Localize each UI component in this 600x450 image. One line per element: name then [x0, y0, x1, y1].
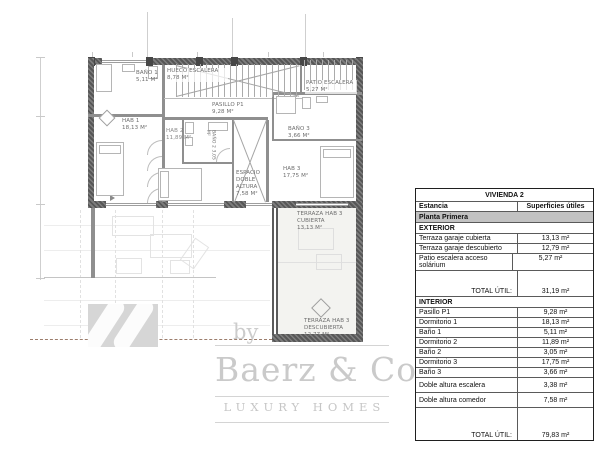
row-value: 5,11 m² — [517, 328, 593, 337]
toilet — [302, 97, 311, 109]
row-value: 3,66 m² — [517, 368, 593, 377]
room-label-hab3: HAB 3 17,75 m² — [283, 166, 313, 180]
row-label: Dormitorio 3 — [416, 358, 517, 367]
watermark-by: by — [215, 322, 389, 343]
bathtub — [96, 64, 112, 92]
total-value: 31,19 m² — [517, 271, 593, 296]
wall-bottom — [88, 201, 106, 208]
room-area: 5,11 m² — [136, 77, 162, 84]
room-area: 7,58 m² — [236, 191, 266, 198]
room-name: BAÑO 3 — [288, 126, 310, 132]
room-name: HUECO ESCALERA — [167, 68, 218, 74]
room-label-hueco-escalera: HUECO ESCALERA 8,78 m² — [166, 68, 228, 82]
room-name: BAÑO 1 — [136, 70, 158, 76]
table-row: Baño 1 5,11 m² — [416, 327, 593, 337]
partition — [232, 120, 234, 202]
sink — [316, 96, 328, 103]
room-name: HAB 2 — [166, 128, 183, 134]
pillow — [99, 145, 121, 154]
room-label-hab2: HAB 2 11,89 m² — [166, 128, 196, 142]
dimension-line — [40, 57, 41, 280]
column-header: Estancia — [416, 202, 517, 211]
row-label: Patio escalera acceso solárium — [416, 254, 512, 270]
table-row: Baño 2 3,05 m² — [416, 347, 593, 357]
terrace-furniture — [316, 254, 342, 270]
partition — [266, 120, 269, 202]
dimension-tick — [132, 52, 133, 57]
garden-line — [44, 225, 270, 226]
terrace-wall-left — [272, 208, 278, 336]
garden-line — [44, 300, 270, 301]
dimension-tick — [36, 116, 45, 117]
wardrobe-door-arc — [147, 140, 162, 155]
grid-line — [147, 12, 148, 58]
shower — [276, 96, 296, 114]
row-value: 11,89 m² — [517, 338, 593, 347]
brand-watermark: by Baerz & Co LUXURY HOMES — [215, 322, 389, 423]
table-row: Terraza garaje cubierta 13,13 m² — [416, 233, 593, 243]
row-label: Pasillo P1 — [416, 308, 517, 317]
wall-left-wing — [91, 205, 95, 278]
room-area: 17,75 m² — [283, 173, 313, 180]
table-row: Dormitorio 2 11,89 m² — [416, 337, 593, 347]
table-title-row: VIVIENDA 2 — [416, 189, 593, 201]
row-value: 18,13 m² — [517, 318, 593, 327]
row-label: Baño 2 — [416, 348, 517, 357]
row-value: 9,28 m² — [517, 308, 593, 317]
table-header-row: Estancia Superficies útiles — [416, 201, 593, 211]
row-label: Doble altura escalera — [416, 378, 517, 392]
row-label: Dormitorio 1 — [416, 318, 517, 327]
table-total-row: TOTAL ÚTIL: 31,19 m² — [416, 270, 593, 296]
table-row: Dormitorio 3 17,75 m² — [416, 357, 593, 367]
areas-table: VIVIENDA 2 Estancia Superficies útiles P… — [415, 188, 594, 441]
table-section-row: EXTERIOR — [416, 222, 593, 233]
total-value: 79,83 m² — [517, 408, 593, 440]
row-value: 12,79 m² — [517, 244, 593, 253]
dimension-tick — [323, 52, 324, 57]
room-name: BAÑO 2 — [211, 130, 216, 148]
table-row: Doble altura escalera 3,38 m² — [416, 377, 593, 392]
table-title: VIVIENDA 2 — [416, 189, 593, 201]
partition — [272, 95, 274, 141]
total-label: TOTAL ÚTIL: — [416, 271, 517, 296]
table-row: Doble altura comedor 7,58 m² — [416, 392, 593, 407]
total-label: TOTAL ÚTIL: — [416, 408, 517, 440]
row-label: Dormitorio 2 — [416, 338, 517, 347]
row-value: 3,05 m² — [517, 348, 593, 357]
window — [106, 203, 156, 206]
table-floor-row: Planta Primera — [416, 211, 593, 222]
wall-right — [356, 58, 363, 342]
dimension-tick — [36, 204, 45, 205]
lower-floor-outline — [112, 216, 154, 236]
room-label-bano3: BAÑO 3 3,66 m² — [288, 126, 316, 140]
agency-logo — [88, 304, 158, 347]
room-name: HAB 1 — [122, 118, 139, 124]
table-section-row: INTERIOR — [416, 296, 593, 307]
room-area: 13,13 m² — [297, 225, 343, 232]
door-arc — [216, 148, 230, 162]
row-label: Terraza garaje descubierto — [416, 244, 517, 253]
room-name: PATIO ESCALERA — [306, 80, 353, 86]
room-label-bano2: BAÑO 2 3,05 m² — [204, 130, 216, 164]
room-label-hab1: HAB 1 18,13 m² — [122, 118, 152, 132]
wall-left — [88, 58, 94, 208]
room-name: HAB 3 — [283, 166, 300, 172]
floor-band: Planta Primera — [416, 212, 593, 222]
table-row: Terraza garaje descubierto 12,79 m² — [416, 243, 593, 253]
garden-dashed-line — [193, 210, 194, 338]
table-row: Patio escalera acceso solárium 5,27 m² — [416, 253, 593, 270]
room-label-bano1: BAÑO 1 5,11 m² — [136, 70, 162, 84]
row-value: 3,38 m² — [517, 378, 593, 392]
room-label-espacio-doble-altura: ESPACIO DOBLE ALTURA 7,58 m² — [236, 170, 266, 199]
row-label: Terraza garaje cubierta — [416, 234, 517, 243]
partition — [272, 139, 362, 141]
garden-dashed-line — [80, 210, 81, 338]
retaining-wall-line — [44, 277, 216, 278]
furniture-diamond — [99, 110, 116, 127]
row-label: Baño 3 — [416, 368, 517, 377]
section-name: INTERIOR — [416, 297, 593, 307]
room-label-terraza-cubierta: TERRAZA HAB 3 CUBIERTA 13,13 m² — [297, 211, 343, 232]
pillow — [323, 149, 351, 158]
row-value: 7,58 m² — [517, 393, 593, 407]
grid-line — [305, 14, 306, 58]
row-label: Doble altura comedor — [416, 393, 517, 407]
table-total-row: TOTAL ÚTIL: 79,83 m² — [416, 407, 593, 440]
dimension-tick — [268, 52, 269, 57]
window — [246, 203, 272, 206]
room-area: 9,28 m² — [212, 109, 252, 116]
window — [296, 203, 348, 206]
room-name: ESPACIO DOBLE ALTURA — [236, 170, 260, 190]
column-header: Superficies útiles — [517, 202, 593, 211]
window — [102, 60, 148, 63]
table-row: Dormitorio 1 18,13 m² — [416, 317, 593, 327]
column — [146, 57, 153, 66]
room-label-patio-escalera: PATIO ESCALERA 5,27 m² — [305, 80, 357, 94]
dimension-tick — [36, 278, 45, 279]
room-area: 3,66 m² — [288, 133, 316, 140]
room-name: PASILLO P1 — [212, 102, 244, 108]
dimension-tick — [36, 57, 45, 58]
garden-dashed-line — [162, 210, 163, 338]
table-row: Pasillo P1 9,28 m² — [416, 307, 593, 317]
room-name: TERRAZA HAB 3 CUBIERTA — [297, 211, 343, 224]
partition — [164, 117, 268, 120]
pillow — [160, 171, 169, 198]
partition — [300, 65, 302, 93]
lower-floor-outline — [116, 258, 142, 274]
floorplan-sheet: HUECO ESCALERA 8,78 m² PASILLO P1 9,28 m… — [0, 0, 600, 450]
row-value: 13,13 m² — [517, 234, 593, 243]
room-area: 11,89 m² — [166, 135, 196, 142]
window — [168, 203, 224, 206]
table-row: Baño 3 3,66 m² — [416, 367, 593, 377]
grid-line — [232, 18, 233, 58]
row-value: 5,27 m² — [512, 254, 588, 270]
watermark-tagline: LUXURY HOMES — [215, 397, 389, 420]
watermark-rule — [215, 422, 389, 423]
room-area: 8,78 m² — [167, 75, 227, 82]
row-value: 17,75 m² — [517, 358, 593, 367]
section-name: EXTERIOR — [416, 223, 593, 233]
watermark-brand: Baerz & Co — [215, 346, 389, 394]
room-label-pasillo: PASILLO P1 9,28 m² — [212, 102, 252, 116]
row-label: Baño 1 — [416, 328, 517, 337]
room-area: 5,27 m² — [306, 87, 356, 94]
room-area: 18,13 m² — [122, 125, 152, 132]
sink — [122, 64, 135, 72]
